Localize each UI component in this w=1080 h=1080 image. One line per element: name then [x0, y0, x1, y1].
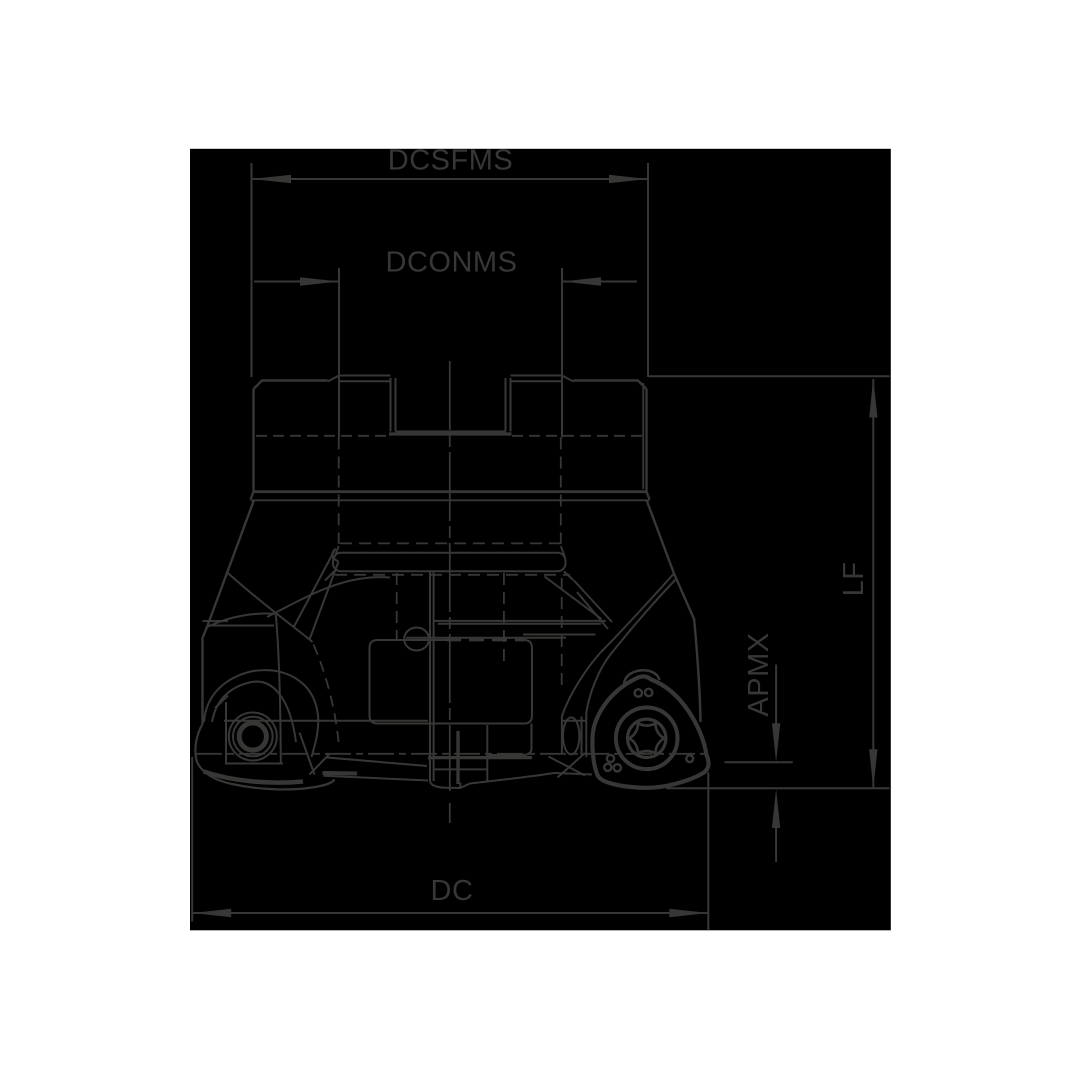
svg-text:APMX: APMX [743, 632, 775, 716]
svg-text:DCONMS: DCONMS [386, 247, 518, 279]
svg-text:DC: DC [431, 875, 474, 907]
svg-text:LF: LF [838, 562, 870, 597]
svg-text:DCSFMS: DCSFMS [388, 145, 513, 177]
